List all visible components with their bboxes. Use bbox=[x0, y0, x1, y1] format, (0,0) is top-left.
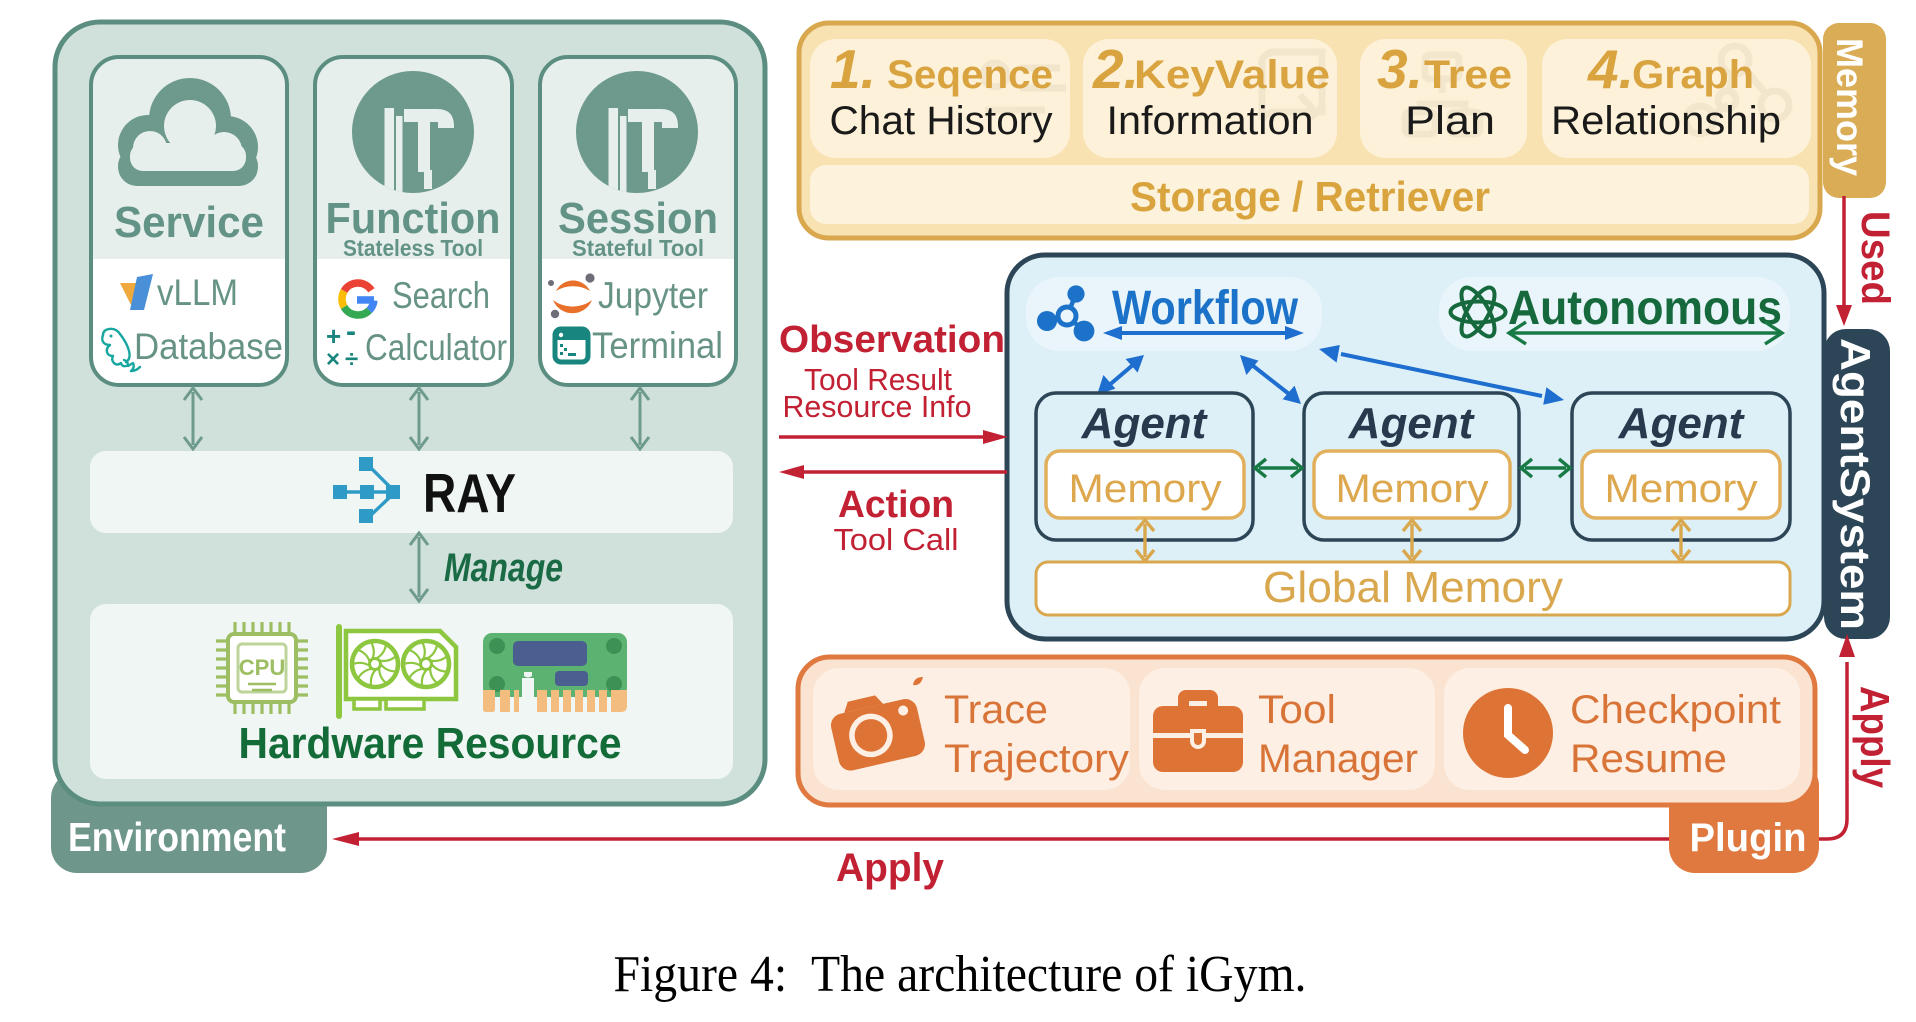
svg-text:Agent: Agent bbox=[1618, 399, 1746, 448]
svg-text:Resume: Resume bbox=[1570, 737, 1727, 781]
svg-text:Storage / Retriever: Storage / Retriever bbox=[1130, 173, 1490, 220]
svg-text:Apply: Apply bbox=[1852, 686, 1898, 788]
svg-text:Apply: Apply bbox=[836, 846, 945, 890]
svg-text:Stateful Tool: Stateful Tool bbox=[572, 235, 704, 261]
svg-text:Plan: Plan bbox=[1405, 99, 1495, 143]
svg-text:Tool Call: Tool Call bbox=[834, 522, 959, 557]
svg-text:vLLM: vLLM bbox=[157, 272, 238, 313]
svg-text:Tree: Tree bbox=[1424, 53, 1512, 97]
svg-text:KeyValue: KeyValue bbox=[1134, 53, 1330, 97]
svg-text:Trace: Trace bbox=[944, 688, 1048, 732]
svg-text:Memory: Memory bbox=[1069, 467, 1222, 511]
svg-text:Used: Used bbox=[1853, 211, 1897, 305]
svg-text:Stateless Tool: Stateless Tool bbox=[343, 235, 483, 261]
svg-text:÷: ÷ bbox=[345, 346, 358, 373]
svg-text:Global Memory: Global Memory bbox=[1263, 563, 1563, 612]
svg-text:Figure 4: The architecture of: Figure 4: The architecture of iGym. bbox=[614, 946, 1307, 1003]
svg-text:Database: Database bbox=[134, 326, 283, 367]
svg-text:CPU: CPU bbox=[239, 655, 285, 680]
svg-text:Workflow: Workflow bbox=[1112, 282, 1299, 335]
svg-text:Memory: Memory bbox=[1829, 38, 1870, 176]
svg-text:Chat History: Chat History bbox=[830, 99, 1053, 143]
svg-text:Observation: Observation bbox=[779, 319, 1005, 361]
svg-text:Service: Service bbox=[114, 198, 264, 247]
svg-text:Trajectory: Trajectory bbox=[944, 737, 1129, 781]
svg-text:Environment: Environment bbox=[68, 814, 286, 860]
svg-text:Terminal: Terminal bbox=[592, 325, 723, 366]
svg-text:Agent: Agent bbox=[1348, 399, 1476, 448]
svg-text:RAY: RAY bbox=[423, 462, 516, 524]
svg-text:Search: Search bbox=[392, 275, 490, 316]
svg-text:AgentSystem: AgentSystem bbox=[1832, 338, 1879, 630]
svg-text:Resource Info: Resource Info bbox=[783, 389, 972, 424]
svg-text:Jupyter: Jupyter bbox=[598, 275, 708, 316]
svg-text:Seqence: Seqence bbox=[887, 53, 1053, 97]
svg-text:Autonomous: Autonomous bbox=[1508, 282, 1782, 335]
svg-text:Memory: Memory bbox=[1605, 467, 1758, 511]
svg-text:Plugin: Plugin bbox=[1690, 816, 1807, 860]
svg-text:Hardware Resource: Hardware Resource bbox=[239, 719, 622, 768]
svg-text:Relationship: Relationship bbox=[1551, 99, 1781, 143]
svg-text:Calculator: Calculator bbox=[365, 327, 507, 368]
svg-text:×: × bbox=[326, 346, 340, 373]
svg-text:-: - bbox=[346, 315, 356, 348]
svg-text:Graph: Graph bbox=[1632, 53, 1754, 97]
svg-text:4.: 4. bbox=[1587, 38, 1634, 100]
svg-text:Manage: Manage bbox=[444, 546, 563, 590]
svg-text:Tool: Tool bbox=[1258, 688, 1336, 732]
svg-text:Checkpoint: Checkpoint bbox=[1570, 688, 1781, 732]
svg-text:3.: 3. bbox=[1377, 38, 1423, 100]
svg-text:Agent: Agent bbox=[1081, 399, 1209, 448]
svg-text:Memory: Memory bbox=[1336, 467, 1489, 511]
svg-text:2.: 2. bbox=[1092, 38, 1139, 100]
svg-text:Manager: Manager bbox=[1258, 737, 1418, 781]
svg-text:Action: Action bbox=[838, 484, 954, 526]
svg-text:1.: 1. bbox=[830, 38, 876, 100]
svg-text:Information: Information bbox=[1107, 99, 1314, 143]
